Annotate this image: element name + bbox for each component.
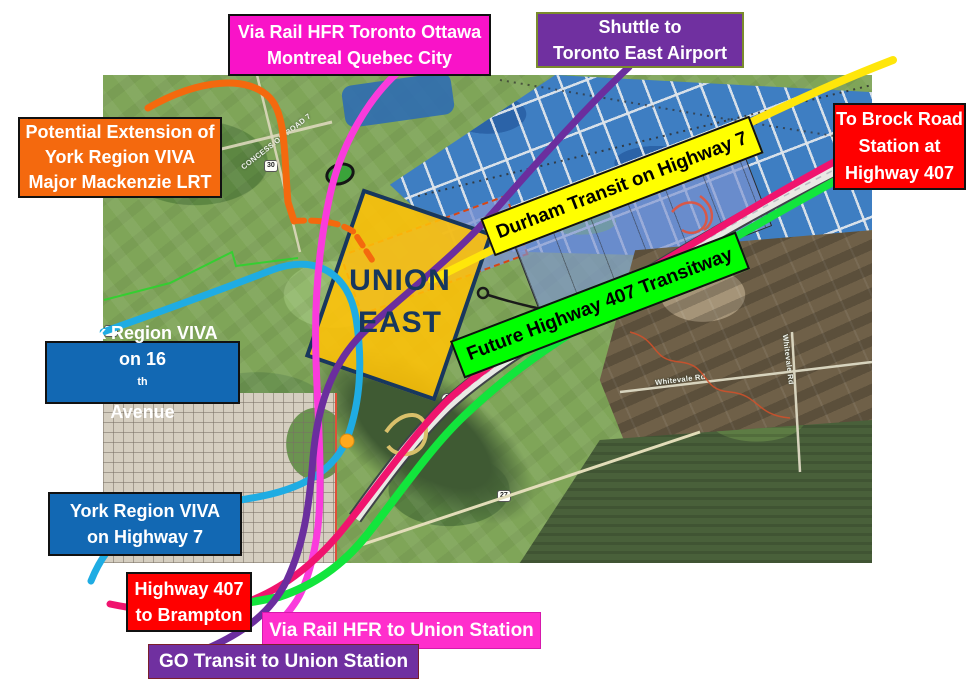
route-shield-27: 27 <box>497 490 511 502</box>
route-shield-30: 30 <box>264 160 278 172</box>
label-airport-shuttle: Shuttle to Toronto East Airport <box>536 12 744 68</box>
label-highway-407-brampton: Highway 407 to Brampton <box>126 572 252 632</box>
label-viva-16th-avenue: York Region VIVA on 16th Avenue <box>45 341 240 404</box>
label-viva-highway-7: York Region VIVA on Highway 7 <box>48 492 242 556</box>
label-via-rail-hfr-top: Via Rail HFR Toronto Ottawa Montreal Que… <box>228 14 491 76</box>
route-shield-407-west: 407 <box>441 393 459 405</box>
slide-canvas: CONCESSION ROAD 7 Whitevale Rd Whitevale… <box>0 0 973 687</box>
label-go-transit-union-station: GO Transit to Union Station <box>148 644 419 679</box>
label-viva-lrt-extension: Potential Extension of York Region VIVA … <box>18 117 222 198</box>
label-brock-road-station: To Brock Road Station at Highway 407 <box>833 103 966 190</box>
union-east-title: UNION EAST <box>340 260 460 344</box>
